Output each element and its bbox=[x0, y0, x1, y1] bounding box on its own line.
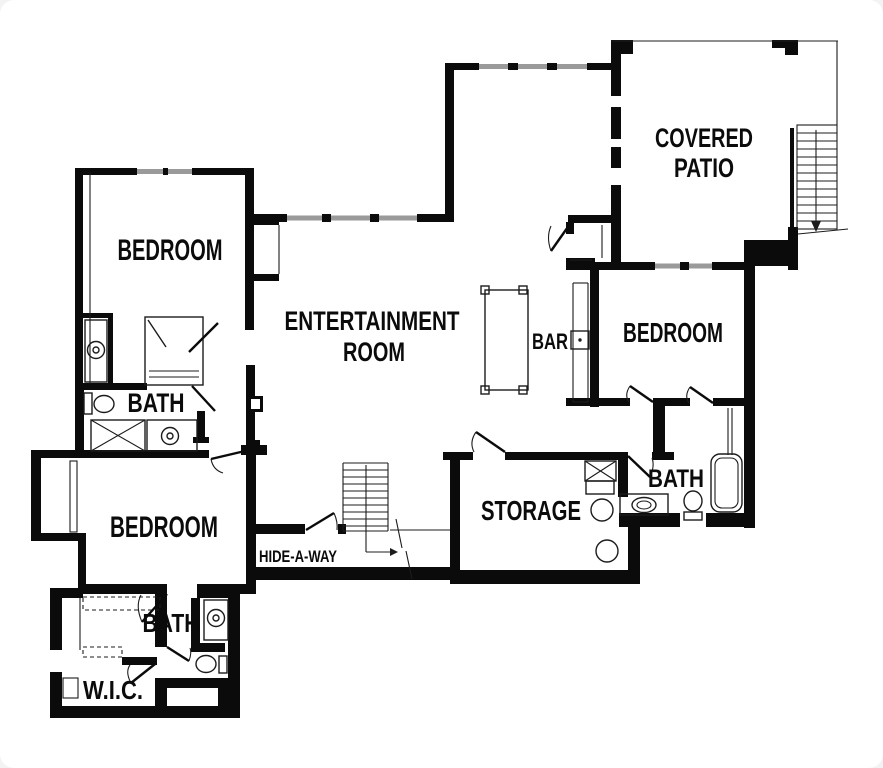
room-label-bar: BAR bbox=[532, 329, 568, 354]
door bbox=[167, 647, 191, 661]
bar-counter bbox=[571, 283, 589, 402]
water-heater bbox=[591, 499, 613, 521]
interior-stairs bbox=[343, 463, 412, 579]
exterior-stairs bbox=[790, 125, 848, 234]
washer-dryer bbox=[585, 461, 616, 494]
toilet-fixture bbox=[196, 656, 227, 674]
window bbox=[331, 216, 370, 221]
pool-table bbox=[481, 286, 528, 394]
windows bbox=[137, 64, 712, 269]
floor-plan-svg: BEDROOM ENTERTAINMENT ROOM BAR COVERED P… bbox=[0, 0, 883, 768]
door bbox=[687, 387, 713, 403]
window bbox=[70, 461, 77, 532]
room-label-bedroom-lower-left: BEDROOM bbox=[110, 511, 218, 544]
window bbox=[287, 216, 322, 221]
window bbox=[689, 264, 712, 269]
bathtub-fixture bbox=[711, 454, 742, 512]
room-labels: BEDROOM ENTERTAINMENT ROOM BAR COVERED P… bbox=[83, 123, 753, 705]
room-label-bedroom-right: BEDROOM bbox=[623, 317, 723, 348]
vanity-sink-fixture bbox=[620, 494, 668, 515]
floor-plan-canvas: BEDROOM ENTERTAINMENT ROOM BAR COVERED P… bbox=[0, 0, 883, 768]
room-label-bath-right: BATH bbox=[648, 465, 704, 493]
door bbox=[472, 432, 505, 452]
room-label-covered-patio-line1: COVERED bbox=[655, 123, 753, 153]
window bbox=[479, 64, 508, 69]
room-label-hide-a-way: HIDE-A-WAY bbox=[259, 547, 337, 566]
room-label-covered-patio-line2: PATIO bbox=[674, 153, 734, 183]
water-heater bbox=[596, 540, 618, 562]
door bbox=[192, 386, 215, 411]
room-label-bath-upper: BATH bbox=[128, 388, 185, 418]
door bbox=[211, 451, 245, 473]
door bbox=[306, 513, 337, 530]
vanity-sink-fixture bbox=[147, 420, 197, 451]
window bbox=[168, 169, 192, 174]
room-label-entertainment-line1: ENTERTAINMENT bbox=[285, 306, 460, 336]
vanity-sink-fixture bbox=[204, 600, 228, 640]
shower-fixture bbox=[91, 420, 145, 451]
room-label-wic: W.I.C. bbox=[83, 675, 143, 705]
room-label-entertainment-line2: ROOM bbox=[343, 337, 405, 367]
door bbox=[549, 224, 571, 251]
window bbox=[655, 264, 680, 269]
room-label-bedroom-upper-left: BEDROOM bbox=[118, 234, 223, 267]
window bbox=[518, 64, 547, 69]
toilet-fixture bbox=[84, 393, 114, 414]
door bbox=[627, 386, 653, 402]
vanity-sink-fixture bbox=[85, 320, 107, 382]
window bbox=[557, 64, 587, 69]
room-label-bath-lower: BATH bbox=[143, 608, 200, 638]
closet-rod bbox=[83, 647, 122, 657]
closet bbox=[145, 317, 203, 385]
window bbox=[137, 169, 163, 174]
window bbox=[379, 216, 417, 221]
patio-outline bbox=[611, 41, 838, 125]
room-label-storage: STORAGE bbox=[481, 495, 581, 526]
